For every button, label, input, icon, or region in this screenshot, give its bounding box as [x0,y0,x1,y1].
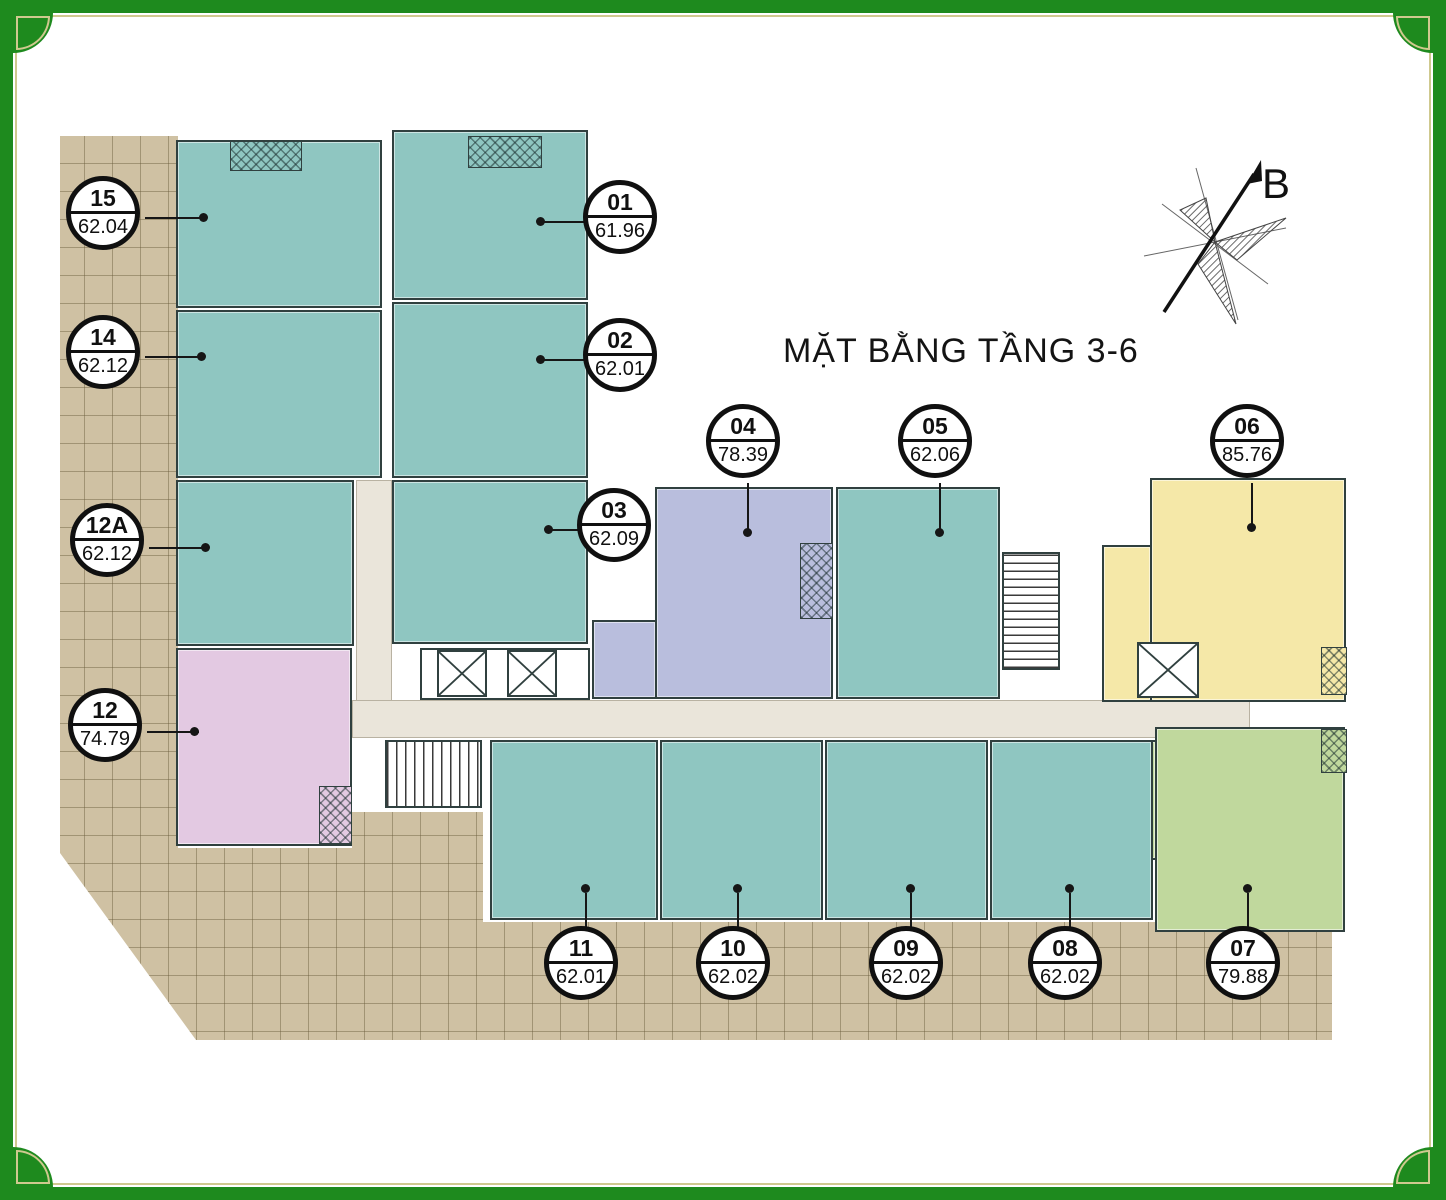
label-leader-line [149,547,209,549]
unit-09-block[interactable] [825,740,988,920]
unit-11-block[interactable] [490,740,658,920]
label-anchor-dot [906,884,915,893]
balcony-hatch [319,786,352,844]
unit-number: 05 [903,409,967,442]
balcony-hatch [468,136,542,168]
unit-area-value: 62.01 [549,964,613,996]
unit-area-value: 62.12 [71,353,135,385]
unit-area-value: 62.01 [588,356,652,388]
frame-corner-ornament [1393,13,1433,53]
label-anchor-dot [197,352,206,361]
unit-02-block[interactable] [392,302,588,478]
balcony-hatch [1321,647,1347,695]
unit-number: 01 [588,185,652,218]
unit-09-label[interactable]: 0962.02 [869,926,943,1000]
unit-12A-label[interactable]: 12A62.12 [70,503,144,577]
unit-03-label[interactable]: 0362.09 [577,488,651,562]
unit-11-label[interactable]: 1162.01 [544,926,618,1000]
label-leader-line [939,483,941,532]
frame-corner-ornament [13,13,53,53]
unit-08-label[interactable]: 0862.02 [1028,926,1102,1000]
unit-number: 12A [75,508,139,541]
compass-north-label: B [1262,160,1290,207]
unit-05-block[interactable] [836,487,1000,699]
unit-number: 02 [588,323,652,356]
unit-area-value: 62.02 [1033,964,1097,996]
balcony-hatch [1321,729,1347,773]
elevator-icon [1137,642,1199,698]
label-leader-line [145,217,207,219]
plan-title: MẶT BẰNG TẦNG 3-6 [783,332,1139,371]
unit-15-label[interactable]: 1562.04 [66,176,140,250]
floor-plan-canvas: 0161.960262.010362.090478.390562.060685.… [0,0,1446,1200]
label-leader-line [145,356,205,358]
unit-number: 03 [582,493,646,526]
unit-area-value: 62.04 [71,214,135,246]
frame-corner-ornament [1393,1147,1433,1187]
label-anchor-dot [536,217,545,226]
unit-07-label[interactable]: 0779.88 [1206,926,1280,1000]
unit-number: 14 [71,320,135,353]
label-anchor-dot [190,727,199,736]
unit-number: 06 [1215,409,1279,442]
unit-14-label[interactable]: 1462.12 [66,315,140,389]
label-anchor-dot [1065,884,1074,893]
label-leader-line [542,221,588,223]
unit-area-value: 85.76 [1215,442,1279,474]
unit-02-label[interactable]: 0262.01 [583,318,657,392]
unit-05-label[interactable]: 0562.06 [898,404,972,478]
elevator-icon [507,650,557,697]
label-anchor-dot [544,525,553,534]
corridor-horizontal [352,700,1250,738]
label-anchor-dot [733,884,742,893]
elevator-icon [437,650,487,697]
unit-number: 08 [1033,931,1097,964]
staircase-east [1002,552,1060,670]
balcony-hatch [800,543,833,619]
unit-area-value: 62.02 [701,964,765,996]
unit-number: 10 [701,931,765,964]
frame-corner-ornament [13,1147,53,1187]
unit-area-value: 61.96 [588,218,652,250]
unit-number: 11 [549,931,613,964]
unit-number: 09 [874,931,938,964]
label-anchor-dot [1247,523,1256,532]
unit-number: 04 [711,409,775,442]
label-anchor-dot [1243,884,1252,893]
unit-12-label[interactable]: 1274.79 [68,688,142,762]
unit-04-block[interactable] [592,620,657,699]
unit-number: 12 [73,693,137,726]
unit-area-value: 62.02 [874,964,938,996]
unit-area-value: 62.09 [582,526,646,558]
label-anchor-dot [581,884,590,893]
unit-07-block[interactable] [1155,727,1345,932]
unit-10-block[interactable] [660,740,823,920]
label-anchor-dot [743,528,752,537]
label-anchor-dot [536,355,545,364]
label-leader-line [747,483,749,532]
unit-number: 15 [71,181,135,214]
staircase-west [385,740,482,808]
unit-01-label[interactable]: 0161.96 [583,180,657,254]
label-leader-line [1251,483,1253,527]
unit-10-label[interactable]: 1062.02 [696,926,770,1000]
unit-08-block[interactable] [990,740,1153,920]
unit-area-value: 62.06 [903,442,967,474]
north-compass-icon: B [1140,152,1290,330]
unit-14-block[interactable] [176,310,382,478]
label-anchor-dot [935,528,944,537]
balcony-hatch [230,141,302,171]
unit-area-value: 79.88 [1211,964,1275,996]
unit-area-value: 78.39 [711,442,775,474]
label-anchor-dot [201,543,210,552]
unit-03-block[interactable] [392,480,588,644]
unit-12A-block[interactable] [176,480,354,646]
unit-04-label[interactable]: 0478.39 [706,404,780,478]
label-anchor-dot [199,213,208,222]
unit-area-value: 74.79 [73,726,137,758]
unit-06-label[interactable]: 0685.76 [1210,404,1284,478]
unit-area-value: 62.12 [75,541,139,573]
label-leader-line [542,359,588,361]
unit-number: 07 [1211,931,1275,964]
